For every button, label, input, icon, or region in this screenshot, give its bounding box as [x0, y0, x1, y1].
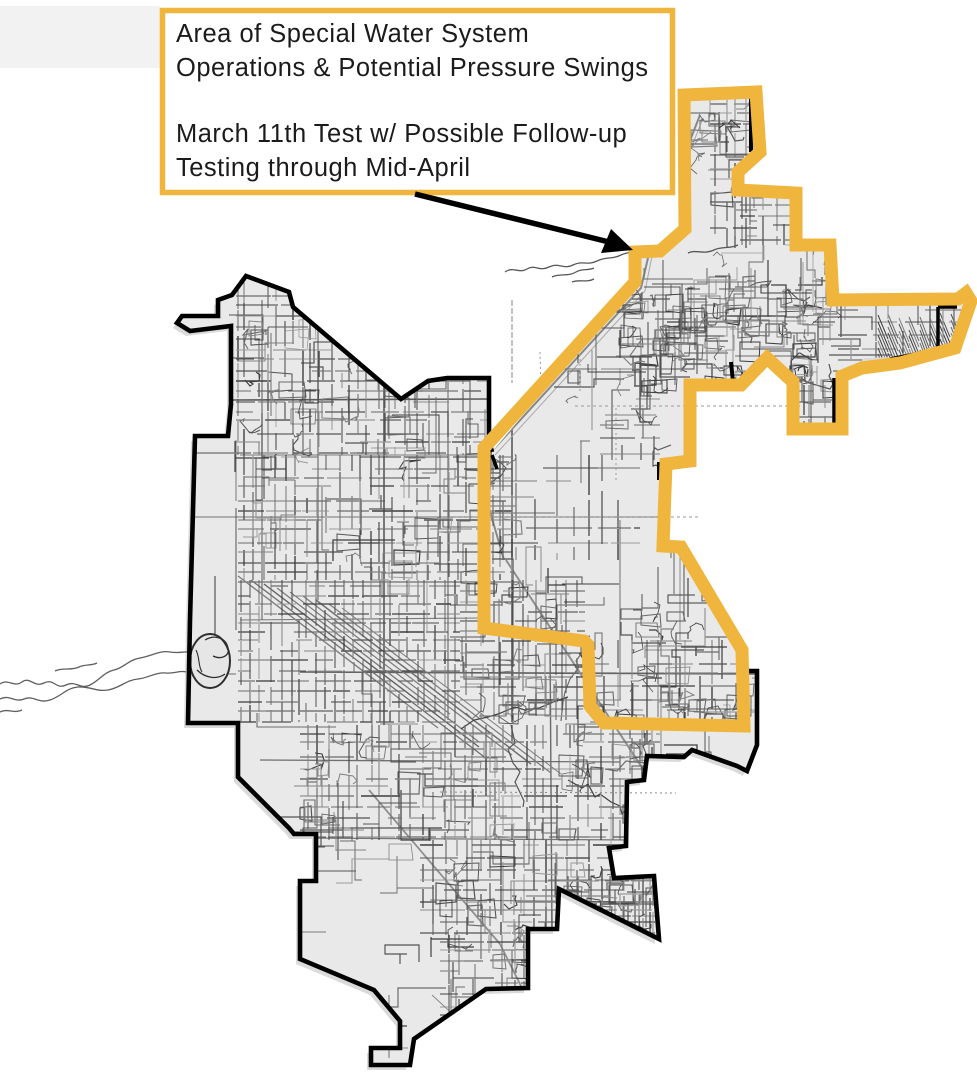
svg-text:Area of Special Water System: Area of Special Water System	[176, 20, 529, 48]
svg-text:Operations & Potential Pressur: Operations & Potential Pressure Swings	[176, 54, 649, 82]
svg-text:March 11th Test w/ Possible Fo: March 11th Test w/ Possible Follow-up	[176, 120, 627, 148]
svg-text:Testing through Mid-April: Testing through Mid-April	[176, 154, 471, 182]
